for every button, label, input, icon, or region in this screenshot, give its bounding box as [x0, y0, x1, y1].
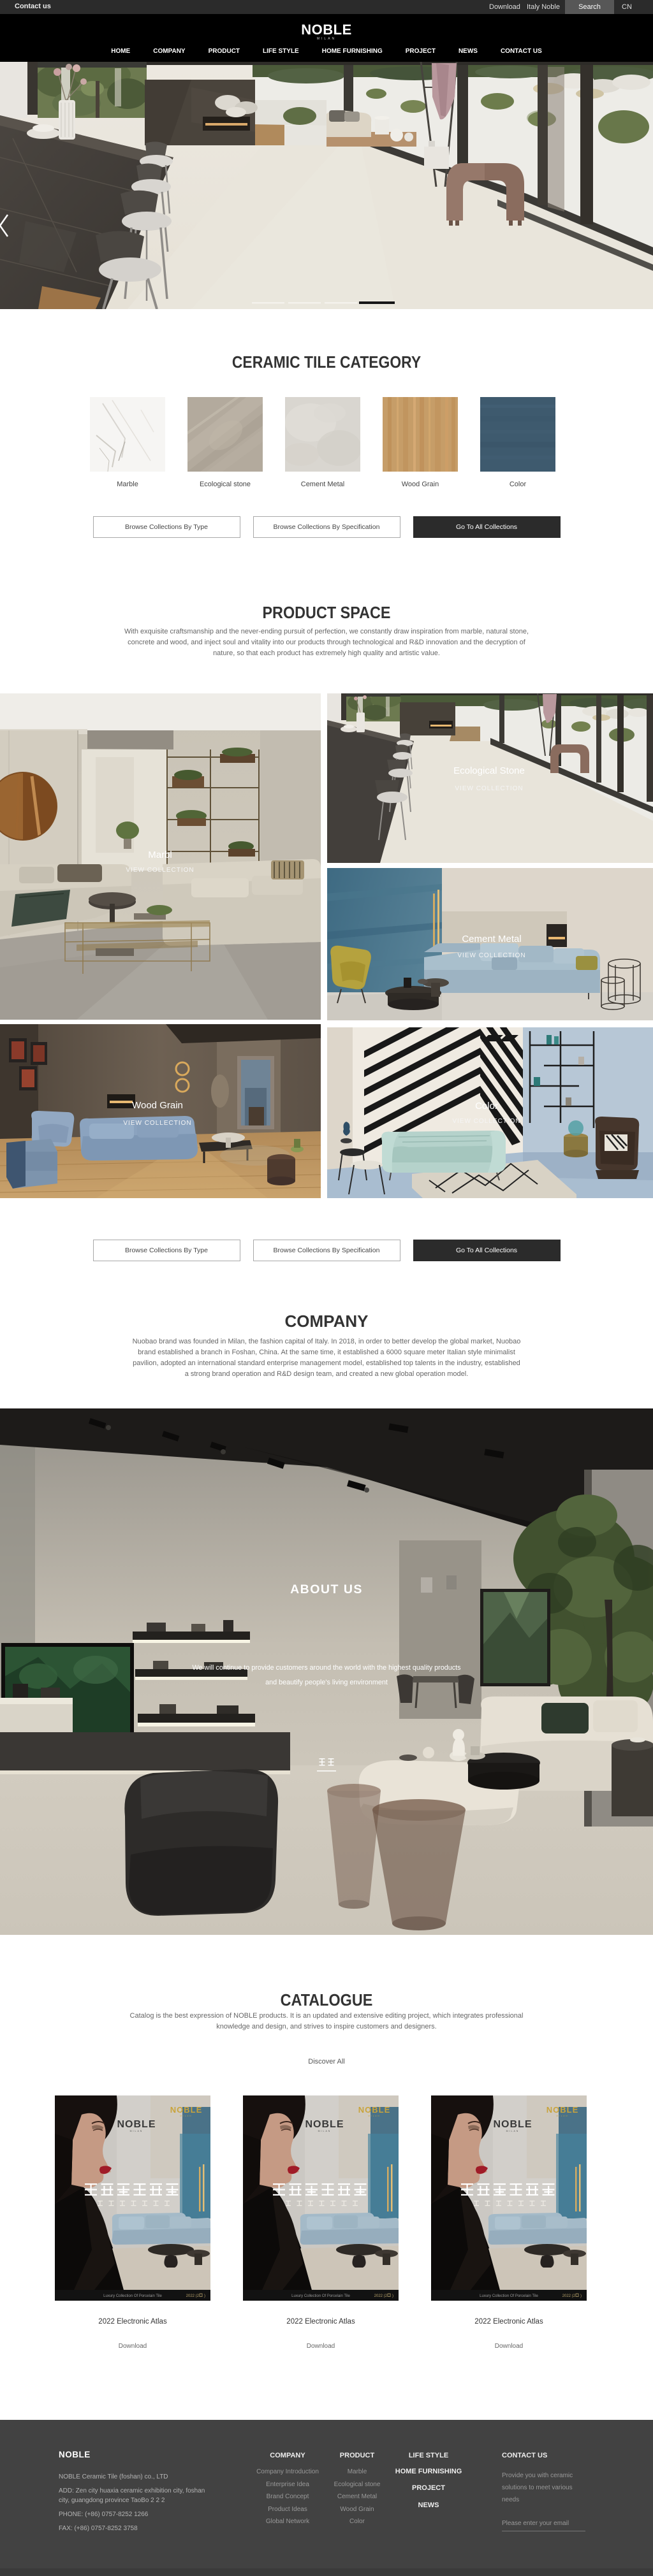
svg-text:): ) — [392, 2294, 393, 2298]
svg-text:NOBLE: NOBLE — [170, 2105, 203, 2115]
svg-text:Luxury Collection Of Porcelain: Luxury Collection Of Porcelain Tile — [480, 2294, 538, 2298]
svg-text:2022 (2: 2022 (2 — [186, 2294, 200, 2298]
svg-text:VIEW COLLECTION: VIEW COLLECTION — [123, 1120, 191, 1127]
svg-text:Ecological Stone: Ecological Stone — [453, 765, 525, 776]
svg-text:VIEW COLLECTION: VIEW COLLECTION — [126, 867, 194, 874]
svg-text:NOBLE: NOBLE — [547, 2105, 579, 2115]
svg-text:MILAN: MILAN — [318, 2130, 332, 2132]
svg-text:and beautify people's living e: and beautify people's living environment — [265, 1679, 388, 1686]
svg-text:VIEW COLLECTION: VIEW COLLECTION — [455, 785, 523, 792]
svg-text:Cement Metal: Cement Metal — [462, 934, 521, 944]
svg-text:MILAN: MILAN — [368, 2115, 380, 2117]
svg-text:2022 (2: 2022 (2 — [562, 2294, 576, 2298]
svg-text:Luxury Collection Of Porcelain: Luxury Collection Of Porcelain Tile — [103, 2294, 162, 2298]
svg-text:MILAN: MILAN — [506, 2130, 520, 2132]
svg-text:NOBLE: NOBLE — [117, 2119, 156, 2130]
svg-text:Luxury Collection Of Porcelain: Luxury Collection Of Porcelain Tile — [291, 2294, 350, 2298]
svg-text:VIEW COLLECTION: VIEW COLLECTION — [452, 1118, 520, 1125]
svg-text:Wood Grain: Wood Grain — [132, 1100, 183, 1111]
svg-text:NOBLE: NOBLE — [358, 2105, 391, 2115]
svg-text:2022 (2: 2022 (2 — [374, 2294, 388, 2298]
svg-text:MILAN: MILAN — [130, 2130, 143, 2132]
svg-text:NOBLE: NOBLE — [305, 2119, 344, 2130]
svg-text:NOBLE: NOBLE — [494, 2119, 532, 2130]
svg-text:): ) — [204, 2294, 205, 2298]
svg-text:Marbl: Marbl — [148, 850, 172, 860]
svg-text:Color: Color — [475, 1101, 498, 1111]
svg-text:MILAN: MILAN — [180, 2115, 192, 2117]
svg-text:VIEW COLLECTION: VIEW COLLECTION — [457, 952, 525, 959]
svg-text:MILAN: MILAN — [556, 2115, 568, 2117]
svg-text:): ) — [580, 2294, 582, 2298]
svg-text:ABOUT US: ABOUT US — [290, 1582, 363, 1596]
svg-text:We will continue to provide cu: We will continue to provide customers ar… — [192, 1664, 461, 1672]
